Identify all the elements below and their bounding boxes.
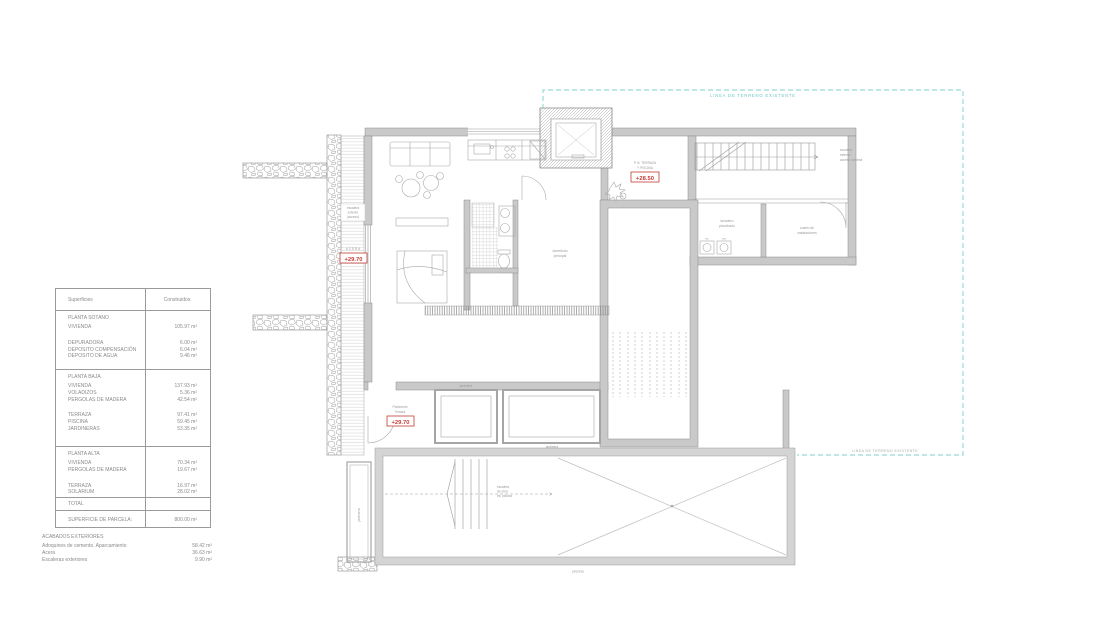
washer-label: lav [705, 238, 709, 241]
service-rooms: lav sec lavadero planchado cuarto de ins… [700, 202, 846, 254]
level-note-line2: Y PISCINA [637, 166, 654, 170]
bedroom-label-line2: principal [554, 254, 567, 258]
living-room-furniture [390, 142, 450, 226]
utility-label-line2: instalaciones [797, 231, 817, 235]
stairs-note-line2: exterior [840, 153, 852, 157]
side-planter-label: jardinera [357, 508, 361, 522]
laundry-label-line2: planchado [719, 224, 735, 228]
ramp-note-line2: exterior [348, 211, 360, 215]
level-marker-entry: Pavimento Terraza +29.70 [387, 405, 414, 426]
floor-plan-sheet: Superficies Construidos PLANTA SOTANO VI… [0, 0, 1110, 626]
level-value: +28.50 [636, 176, 654, 182]
building-walls [364, 128, 856, 451]
planter-label-top: jardinera [459, 384, 473, 388]
pool-label: piscina [572, 570, 583, 574]
side-planter: jardinera [347, 462, 371, 562]
level-marker-terrace: P. B. TERRAZA Y PISCINA +28.50 [631, 161, 659, 182]
pool: escalera de obra int. piscina piscina [375, 448, 795, 574]
boundary-label-right: LINEA DE TERRENO EXISTENTE [852, 449, 918, 453]
dryer-label: sec [722, 238, 727, 241]
kitchen [468, 140, 546, 160]
exterior-stairs: escalera exterior acceso cubierta [695, 142, 863, 171]
boundary-label-top: LINEA DE TERRENO EXISTENTE [710, 93, 796, 98]
level-note-line1: P. B. TERRAZA [634, 161, 657, 165]
pool-steps-note-line1: escalera [497, 485, 509, 489]
level-note-line2: Terraza [395, 410, 406, 414]
pergola-dashed-lines [613, 332, 686, 397]
level-note: ACERA [346, 247, 361, 251]
exterior-ramp [341, 136, 364, 455]
ramp-note-line3: (acceso) [347, 215, 359, 219]
floor-plan-drawing: LINEA DE TERRENO EXISTENTE LINEA DE TERR… [0, 0, 1110, 626]
stairs-note-line3: acceso cubierta [840, 158, 863, 162]
entry-elevator-block [540, 108, 612, 168]
stairs-note-line1: escalera [840, 148, 852, 152]
ramp-note-line1: escalera [347, 206, 359, 210]
ramp-note: escalera exterior (acceso) [341, 204, 365, 221]
level-value: +29.70 [392, 420, 410, 426]
pool-steps-note-line3: int. piscina [497, 494, 512, 498]
planters: jardinera jardinera [435, 384, 600, 449]
laundry-label-line1: lavadero [720, 219, 733, 223]
bedroom-label-line1: dormitorio [552, 249, 567, 253]
level-note-line1: Pavimento [392, 405, 407, 409]
utility-label-line1: cuarto de [800, 226, 814, 230]
level-value: +29.70 [345, 257, 363, 263]
pool-steps-note-line2: de obra [497, 490, 508, 494]
bathroom [472, 203, 515, 273]
